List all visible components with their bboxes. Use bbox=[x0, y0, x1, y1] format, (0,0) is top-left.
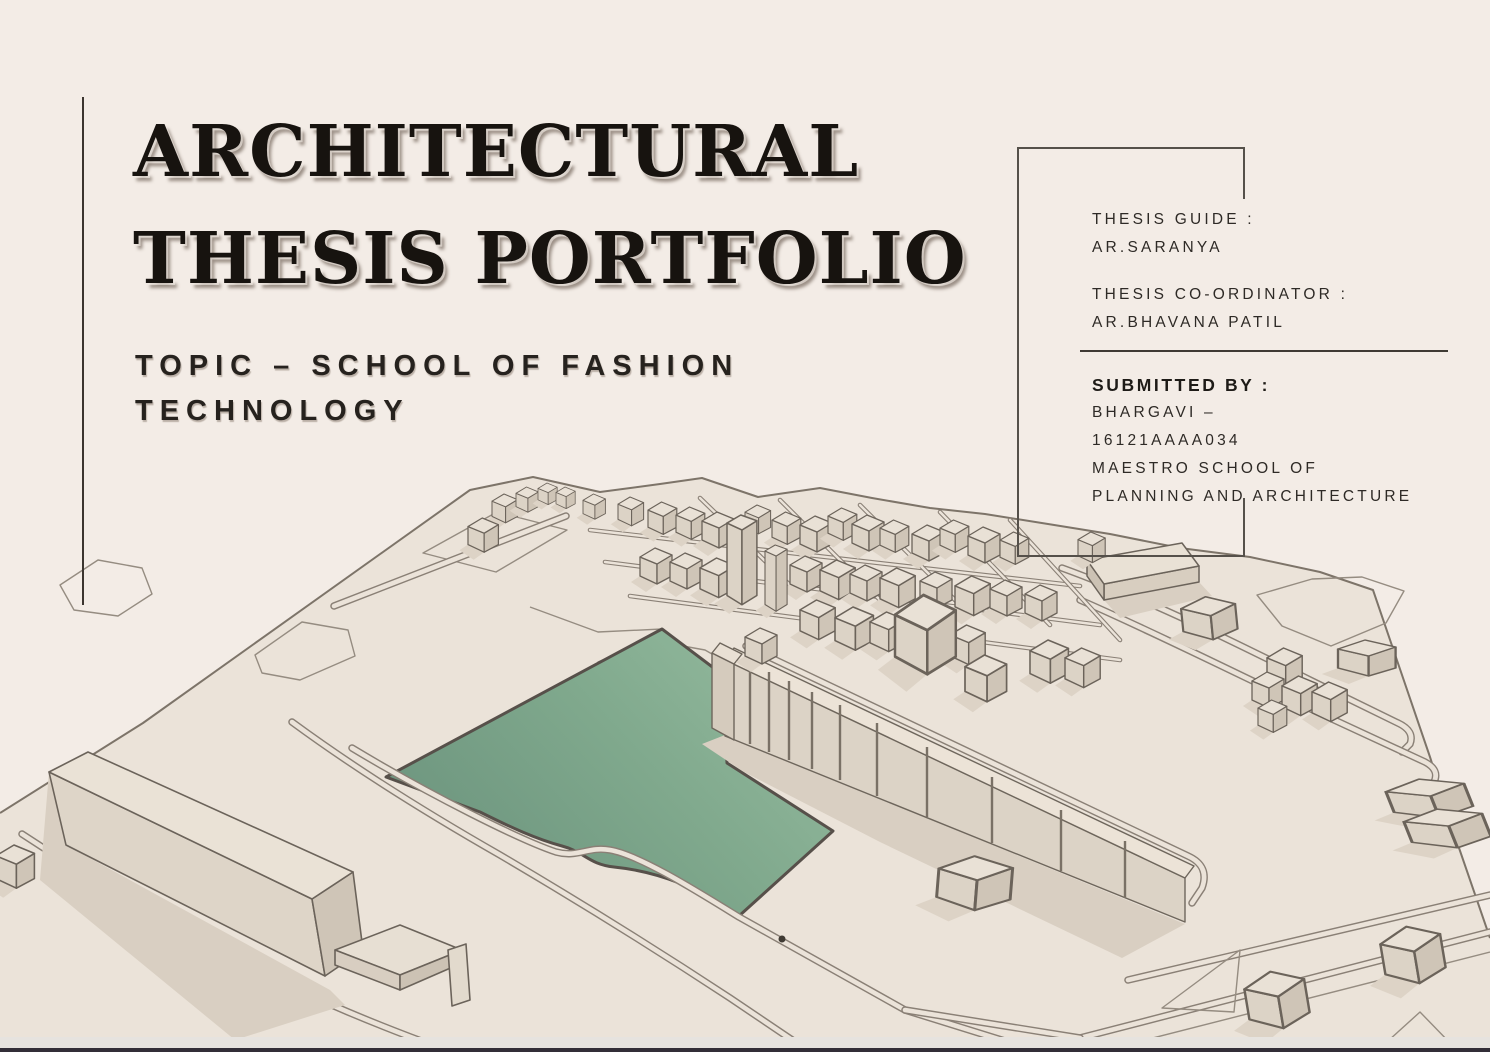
bottom-strip-light bbox=[0, 1037, 1490, 1048]
coordinator-name: AR.BHAVANA PATIL bbox=[1092, 309, 1482, 337]
school-name-line2: PLANNING AND ARCHITECTURE bbox=[1092, 483, 1482, 511]
credits-frame-right-upper bbox=[1243, 147, 1245, 199]
coordinator-label: THESIS CO-ORDINATOR : bbox=[1092, 281, 1482, 309]
title-rule-line bbox=[82, 97, 84, 605]
thesis-guide-name: AR.SARANYA bbox=[1092, 234, 1482, 262]
page-title: ARCHITECTURAL THESIS PORTFOLIO bbox=[133, 98, 967, 312]
topic-line2: TECHNOLOGY bbox=[135, 389, 739, 434]
topic-line1: TOPIC – SCHOOL OF FASHION bbox=[135, 344, 739, 389]
submitted-by-id: 16121AAAA034 bbox=[1092, 427, 1482, 455]
submitted-by-name: BHARGAVI – bbox=[1092, 399, 1482, 427]
submitted-by-label: SUBMITTED BY : bbox=[1092, 371, 1482, 399]
page-title-line2: THESIS PORTFOLIO bbox=[133, 205, 967, 312]
topic-subtitle: TOPIC – SCHOOL OF FASHION TECHNOLOGY bbox=[135, 344, 739, 434]
page-title-line1: ARCHITECTURAL bbox=[133, 98, 967, 205]
car-dot bbox=[779, 936, 786, 943]
credits-frame-left bbox=[1017, 147, 1019, 557]
portfolio-cover-page: ARCHITECTURAL THESIS PORTFOLIO TOPIC – S… bbox=[0, 0, 1490, 1052]
credits-frame-top bbox=[1017, 147, 1245, 149]
thesis-guide-label: THESIS GUIDE : bbox=[1092, 206, 1482, 234]
credits-block: THESIS GUIDE : AR.SARANYA THESIS CO-ORDI… bbox=[1092, 206, 1482, 511]
school-name-line1: MAESTRO SCHOOL OF bbox=[1092, 455, 1482, 483]
bottom-strip-dark bbox=[0, 1048, 1490, 1052]
credits-frame-bottom bbox=[1017, 555, 1245, 557]
